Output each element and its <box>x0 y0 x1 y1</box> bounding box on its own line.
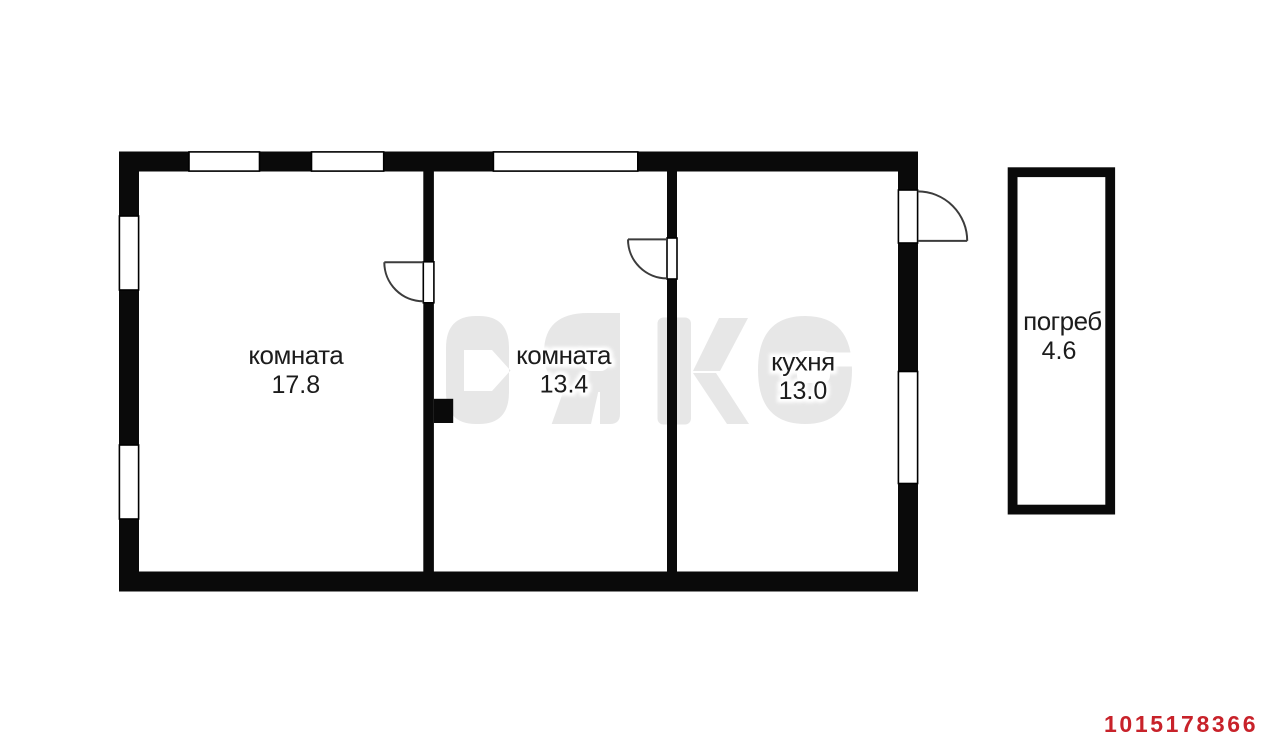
svg-text:комната: комната <box>516 340 612 370</box>
svg-text:13.4: 13.4 <box>540 371 589 399</box>
svg-text:1015178366: 1015178366 <box>1104 711 1258 737</box>
svg-text:4.6: 4.6 <box>1042 337 1077 365</box>
svg-text:13.0: 13.0 <box>779 377 828 405</box>
svg-text:кухня: кухня <box>771 347 835 377</box>
svg-text:17.8: 17.8 <box>271 371 320 399</box>
svg-text:комната: комната <box>248 340 344 370</box>
svg-text:погреб: погреб <box>1023 306 1102 336</box>
